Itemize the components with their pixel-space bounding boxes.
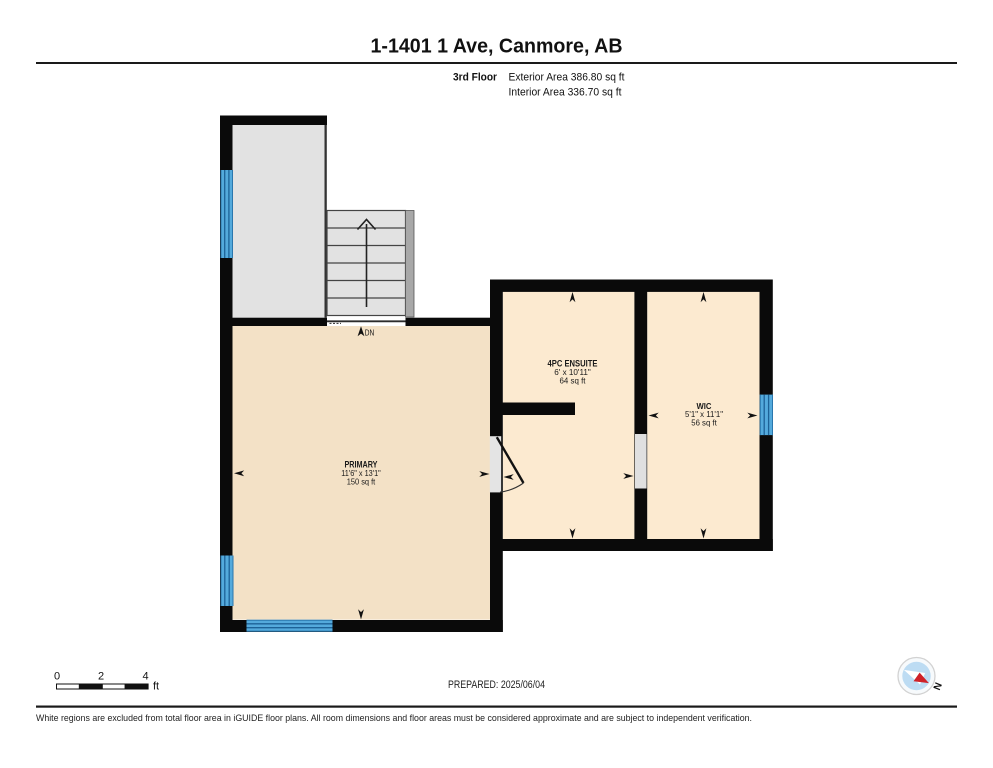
svg-text:ft: ft bbox=[153, 681, 159, 693]
svg-text:64 sq ft: 64 sq ft bbox=[560, 375, 587, 385]
svg-text:4: 4 bbox=[142, 671, 148, 683]
svg-text:3rd Floor: 3rd Floor bbox=[453, 72, 498, 84]
svg-text:Interior Area 336.70 sq ft: Interior Area 336.70 sq ft bbox=[509, 87, 622, 99]
svg-text:PREPARED: 2025/06/04: PREPARED: 2025/06/04 bbox=[448, 679, 545, 691]
svg-text:0: 0 bbox=[54, 671, 60, 683]
svg-text:Exterior Area 386.80 sq ft: Exterior Area 386.80 sq ft bbox=[509, 72, 625, 84]
svg-text:2: 2 bbox=[98, 671, 104, 683]
svg-text:DN: DN bbox=[365, 328, 375, 337]
svg-text:1-1401 1 Ave, Canmore, AB: 1-1401 1 Ave, Canmore, AB bbox=[371, 35, 623, 58]
svg-text:56 sq ft: 56 sq ft bbox=[691, 417, 717, 427]
svg-text:White regions are excluded fro: White regions are excluded from total fl… bbox=[36, 713, 752, 723]
svg-text:150 sq ft: 150 sq ft bbox=[347, 476, 376, 486]
